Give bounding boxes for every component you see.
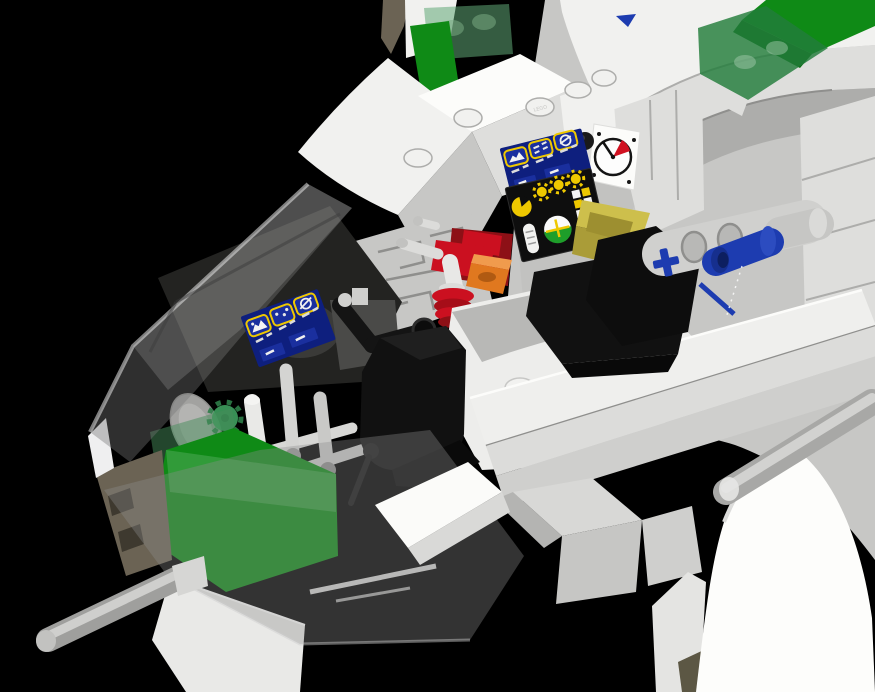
gauge-screw [597, 132, 601, 136]
pin-collar [760, 226, 776, 256]
stud-under-glass [472, 14, 496, 30]
antenna-tip [36, 630, 56, 652]
gray-ball-joint [338, 293, 352, 307]
stud [454, 109, 482, 127]
stud-under-glass [766, 41, 788, 55]
cylinder-cap [809, 208, 827, 238]
pin-bore-inner [718, 252, 729, 268]
render-viewport: LEGO [0, 0, 875, 692]
stud [592, 70, 616, 86]
handle-end [719, 477, 739, 501]
handle-knob [413, 216, 423, 226]
gauge-hub [611, 155, 615, 159]
stud [565, 82, 591, 98]
gauge-screw [632, 138, 636, 142]
box2 [642, 506, 702, 586]
clock-gauge-tile [588, 124, 640, 190]
gauge-screw [627, 180, 631, 184]
render-canvas: LEGO [0, 0, 875, 692]
stud [404, 149, 432, 167]
cylinder-top [244, 395, 260, 405]
spigot-tip [396, 238, 408, 248]
beam-hole [682, 232, 706, 262]
orange-recess [478, 272, 496, 282]
stud-under-glass [734, 55, 756, 69]
gray-pin [352, 288, 368, 305]
post [286, 370, 293, 452]
